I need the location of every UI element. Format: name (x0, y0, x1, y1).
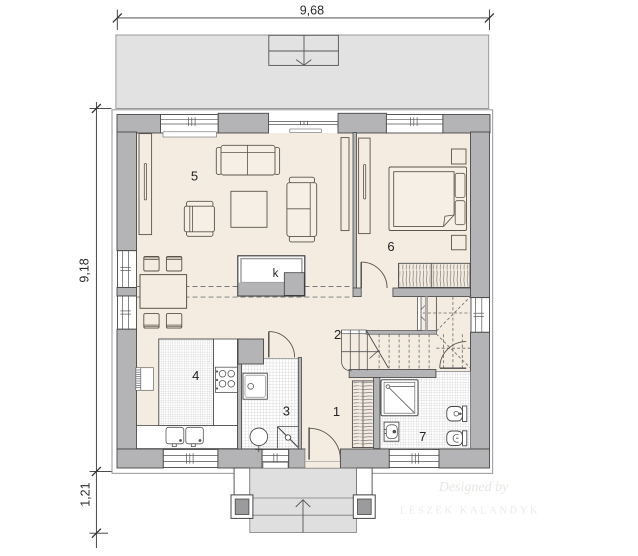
svg-text:7: 7 (419, 429, 426, 444)
svg-text:4: 4 (192, 368, 199, 383)
svg-text:Designed by: Designed by (438, 480, 509, 495)
svg-text:2: 2 (334, 327, 341, 342)
svg-text:9,18: 9,18 (78, 258, 92, 282)
svg-text:1,21: 1,21 (79, 482, 93, 506)
svg-text:5: 5 (191, 169, 198, 184)
svg-text:9,68: 9,68 (300, 4, 324, 18)
svg-text:6: 6 (387, 239, 394, 254)
svg-text:3: 3 (283, 404, 290, 419)
svg-text:k: k (273, 268, 279, 280)
svg-text:LESZEK KALANDYK: LESZEK KALANDYK (400, 506, 540, 517)
svg-text:1: 1 (333, 404, 340, 419)
